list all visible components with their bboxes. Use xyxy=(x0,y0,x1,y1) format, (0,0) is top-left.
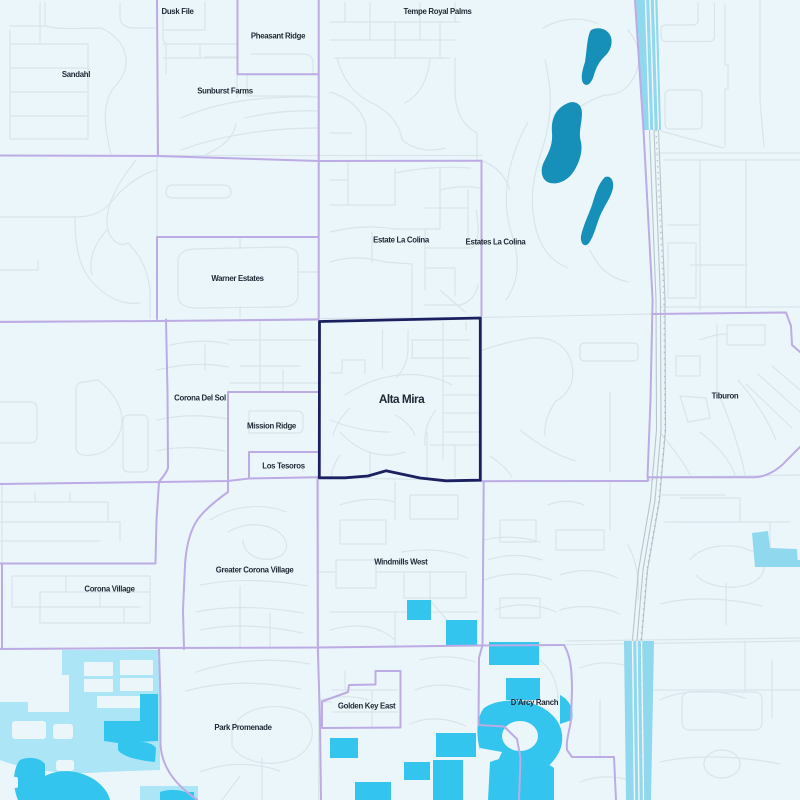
svg-text:Warner Estates: Warner Estates xyxy=(211,274,264,283)
svg-text:Estates La Colina: Estates La Colina xyxy=(466,238,527,247)
svg-text:Park Promenade: Park Promenade xyxy=(214,723,272,732)
svg-text:Corona Del Sol: Corona Del Sol xyxy=(174,394,226,403)
svg-text:Estate La Colina: Estate La Colina xyxy=(373,236,430,245)
svg-text:Corona Village: Corona Village xyxy=(84,584,135,593)
svg-text:Dusk File: Dusk File xyxy=(162,7,195,16)
svg-text:Tempe Royal Palms: Tempe Royal Palms xyxy=(404,7,473,16)
svg-text:Tiburon: Tiburon xyxy=(712,392,739,401)
svg-text:Sandahl: Sandahl xyxy=(62,70,90,79)
svg-text:Golden Key East: Golden Key East xyxy=(338,702,396,711)
svg-text:Los Tesoros: Los Tesoros xyxy=(262,462,305,471)
svg-text:Sunburst Farms: Sunburst Farms xyxy=(197,87,254,96)
svg-text:Mission Ridge: Mission Ridge xyxy=(247,422,297,431)
svg-text:D’Arcy Ranch: D’Arcy Ranch xyxy=(511,698,559,707)
svg-text:Alta Mira: Alta Mira xyxy=(379,392,425,406)
svg-text:Windmills West: Windmills West xyxy=(374,557,428,566)
svg-text:Pheasant Ridge: Pheasant Ridge xyxy=(251,32,306,41)
svg-text:Greater Corona Village: Greater Corona Village xyxy=(216,566,295,575)
